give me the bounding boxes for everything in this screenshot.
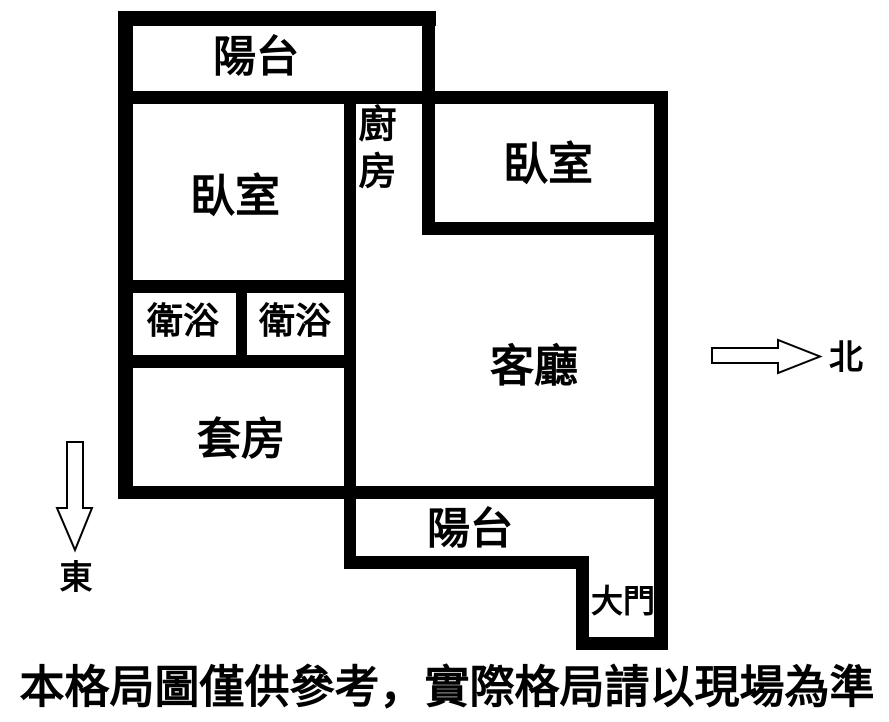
room-label-bath-right: 衛浴 [259,304,331,340]
room-label-bedroom-right: 臥室 [503,142,593,187]
room-label-balcony-bottom: 陽台 [427,509,513,552]
wall-top-outer [118,11,436,26]
wall-bath-bottom [118,355,356,368]
room-label-living-room: 客廳 [490,345,578,389]
room-label-kitchen: 廚房 [355,104,393,198]
floor-plan: 陽台 臥室 臥室 廚房 衛浴 衛浴 客廳 套房 陽台 大門 北 東 本格局圖僅供… [0,0,889,722]
room-label-bedroom-left: 臥室 [190,174,280,219]
wall-balcony-bottom-bottom [344,556,589,569]
wall-main-bottom [118,486,668,499]
north-arrow-icon [710,337,823,376]
room-label-bath-left: 衛浴 [147,304,219,340]
wall-door-left [576,556,589,650]
wall-right-outer [654,91,668,650]
disclaimer-text: 本格局圖僅供參考，實際格局請以現場為準 [19,665,874,710]
room-label-balcony-top: 陽台 [213,37,299,80]
room-label-suite: 套房 [197,418,285,462]
wall-door-bottom [576,637,668,650]
east-label: 東 [60,561,93,594]
room-label-main-door: 大門 [591,585,655,617]
wall-balcony-top-bottom [118,91,668,104]
east-arrow-icon [55,440,95,553]
wall-balcony-top-right [422,11,435,235]
wall-bedroom-right-bottom [422,222,668,235]
north-label: 北 [829,341,863,375]
wall-left-outer [118,11,133,499]
